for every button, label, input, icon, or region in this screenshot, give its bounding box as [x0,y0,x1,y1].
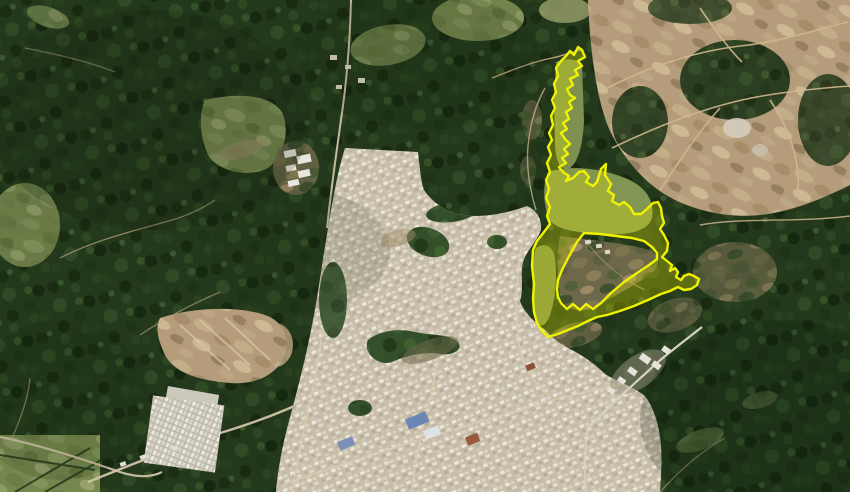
satellite-map-canvas[interactable] [0,0,850,492]
scrub-right-1 [693,242,777,302]
greenbelt-2 [348,400,372,416]
quarry-pit-2 [257,323,293,367]
forest-patch-tr-1 [680,40,790,120]
rock-outcrop [723,118,751,138]
vehicle-lot [144,395,225,472]
greenbelt-3 [487,235,507,249]
rock-outcrop-2 [752,144,768,156]
map-root [0,0,850,492]
forest-patch-tr-2 [612,86,668,158]
